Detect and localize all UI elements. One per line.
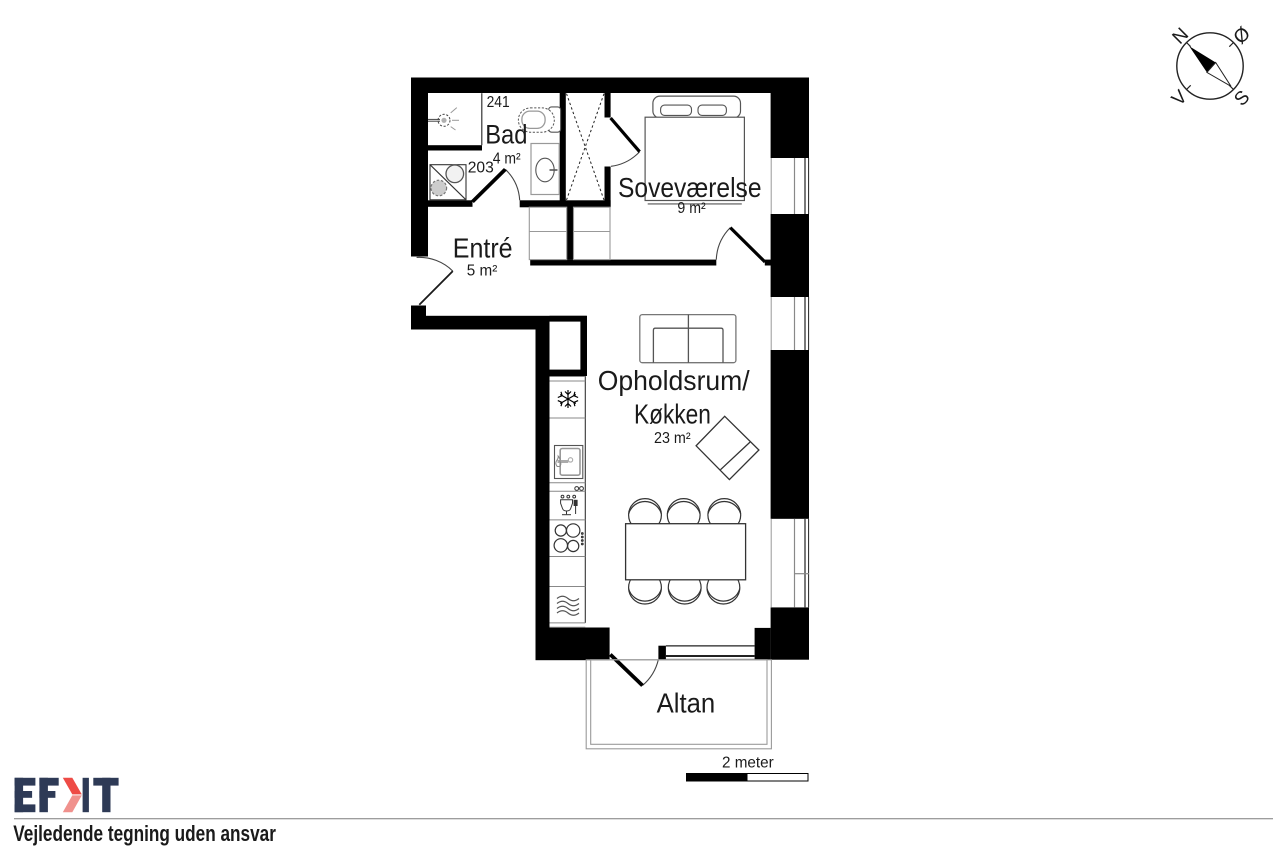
svg-text:5 m²: 5 m² (467, 263, 498, 280)
svg-text:Opholdsrum/: Opholdsrum/ (598, 365, 750, 396)
svg-text:241: 241 (487, 94, 510, 111)
svg-text:Altan: Altan (657, 688, 716, 719)
svg-text:4 m²: 4 m² (493, 151, 521, 168)
svg-text:Køkken: Køkken (634, 399, 711, 430)
svg-text:23 m²: 23 m² (654, 430, 691, 447)
svg-text:203: 203 (468, 159, 494, 176)
svg-text:Bad: Bad (485, 120, 527, 150)
svg-text:Vejledende tegning uden ansvar: Vejledende tegning uden ansvar (13, 821, 276, 846)
svg-text:2 meter: 2 meter (722, 755, 774, 772)
svg-text:9 m²: 9 m² (677, 200, 705, 217)
svg-text:Soveværelse: Soveværelse (618, 172, 762, 203)
svg-text:Entré: Entré (453, 233, 513, 264)
